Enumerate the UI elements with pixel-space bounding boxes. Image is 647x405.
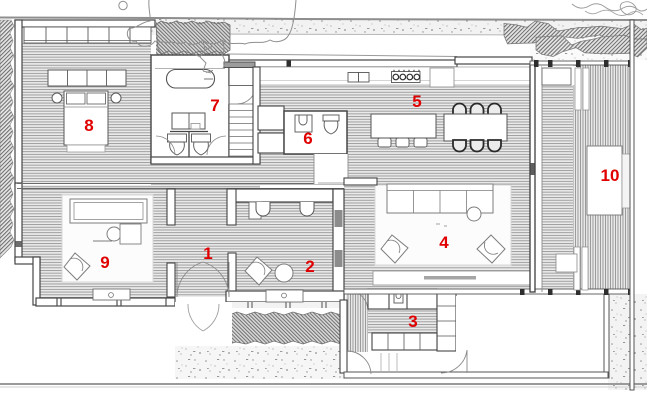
svg-text:7: 7: [210, 96, 219, 115]
svg-text:1: 1: [203, 244, 212, 263]
svg-text:4: 4: [439, 233, 449, 252]
svg-text:5: 5: [412, 92, 421, 111]
svg-text:2: 2: [305, 257, 314, 276]
svg-text:8: 8: [84, 116, 93, 135]
svg-text:10: 10: [601, 166, 620, 185]
svg-text:6: 6: [303, 129, 312, 148]
svg-text:9: 9: [100, 253, 109, 272]
svg-text:3: 3: [408, 312, 417, 331]
